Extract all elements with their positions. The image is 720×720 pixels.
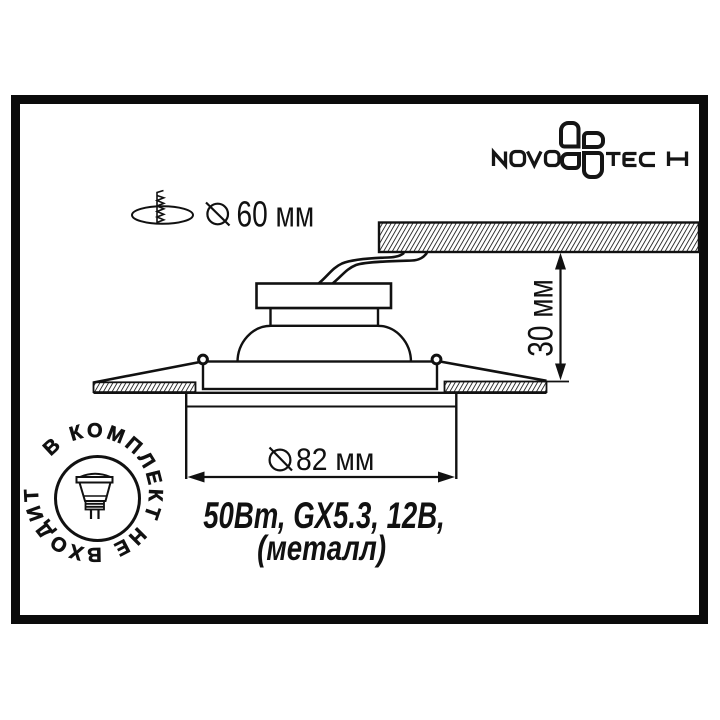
svg-text:82 мм: 82 мм <box>296 443 374 478</box>
svg-text:30 мм: 30 мм <box>520 279 560 356</box>
svg-text:(металл): (металл) <box>257 528 386 568</box>
svg-text:60 мм: 60 мм <box>237 194 315 234</box>
